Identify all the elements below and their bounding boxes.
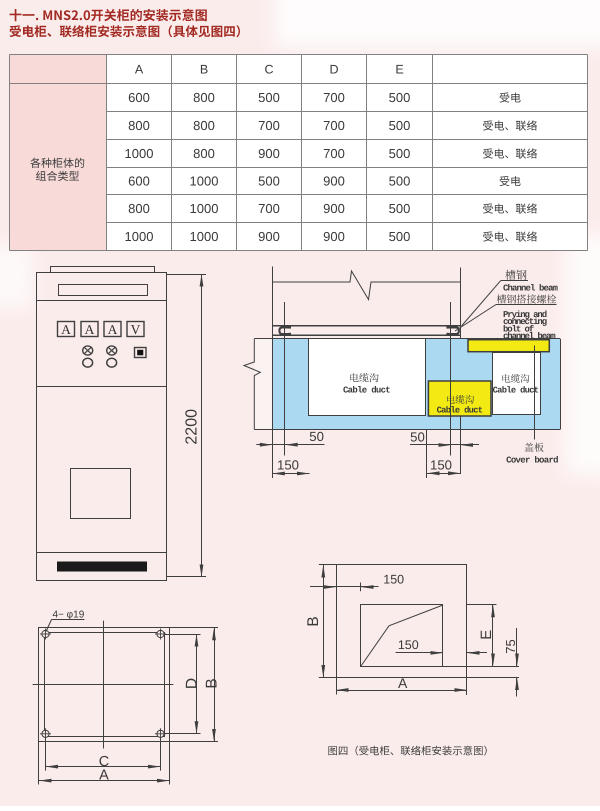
svg-text:800: 800 [193,118,215,133]
svg-text:500: 500 [258,90,280,105]
svg-text:Cover board: Cover board [506,456,558,466]
svg-text:900: 900 [323,174,345,189]
svg-text:600: 600 [128,174,150,189]
svg-text:1000: 1000 [190,229,219,244]
svg-text:B: B [200,63,208,77]
svg-text:B: B [305,616,322,626]
svg-text:800: 800 [128,201,150,216]
svg-text:Cable duct: Cable duct [493,386,539,396]
svg-text:500: 500 [258,174,280,189]
svg-text:A: A [398,675,408,691]
svg-text:900: 900 [323,201,345,216]
svg-text:V: V [131,322,141,337]
svg-text:1000: 1000 [190,201,219,216]
svg-text:700: 700 [323,146,345,161]
svg-text:Cable duct: Cable duct [437,406,483,416]
svg-text:500: 500 [389,90,411,105]
svg-text:150: 150 [383,573,404,587]
svg-text:A: A [108,322,118,337]
svg-text:channel beam: channel beam [503,332,556,342]
svg-text:B: B [204,678,221,688]
svg-text:150: 150 [398,638,419,652]
svg-text:1000: 1000 [125,229,154,244]
svg-text:500: 500 [389,174,411,189]
svg-text:D: D [329,63,338,77]
svg-text:800: 800 [128,118,150,133]
svg-text:150: 150 [430,458,452,473]
svg-text:600: 600 [128,90,150,105]
svg-text:4− φ19: 4− φ19 [53,610,85,621]
svg-text:150: 150 [277,458,299,473]
svg-text:E: E [395,63,403,77]
svg-text:A: A [85,322,95,337]
svg-text:Cable duct: Cable duct [343,386,390,396]
svg-text:Channel beam: Channel beam [503,283,559,293]
svg-text:900: 900 [258,146,280,161]
svg-text:500: 500 [389,146,411,161]
svg-text:500: 500 [389,229,411,244]
svg-text:2200: 2200 [184,409,201,445]
svg-text:50: 50 [309,429,324,444]
svg-text:900: 900 [258,229,280,244]
svg-text:1000: 1000 [125,146,154,161]
svg-text:700: 700 [258,201,280,216]
svg-text:D: D [184,678,201,689]
svg-text:50: 50 [410,430,425,445]
svg-text:A: A [99,767,109,783]
svg-text:800: 800 [193,90,215,105]
svg-text:500: 500 [389,118,411,133]
svg-text:A: A [61,322,71,337]
svg-text:700: 700 [323,90,345,105]
svg-text:800: 800 [193,146,215,161]
svg-text:75: 75 [503,639,518,653]
svg-text:700: 700 [258,118,280,133]
svg-text:500: 500 [389,201,411,216]
svg-text:E: E [478,630,495,640]
svg-text:C: C [264,63,273,77]
svg-text:700: 700 [323,118,345,133]
svg-text:1000: 1000 [190,174,219,189]
svg-text:900: 900 [323,229,345,244]
svg-text:A: A [135,63,144,77]
